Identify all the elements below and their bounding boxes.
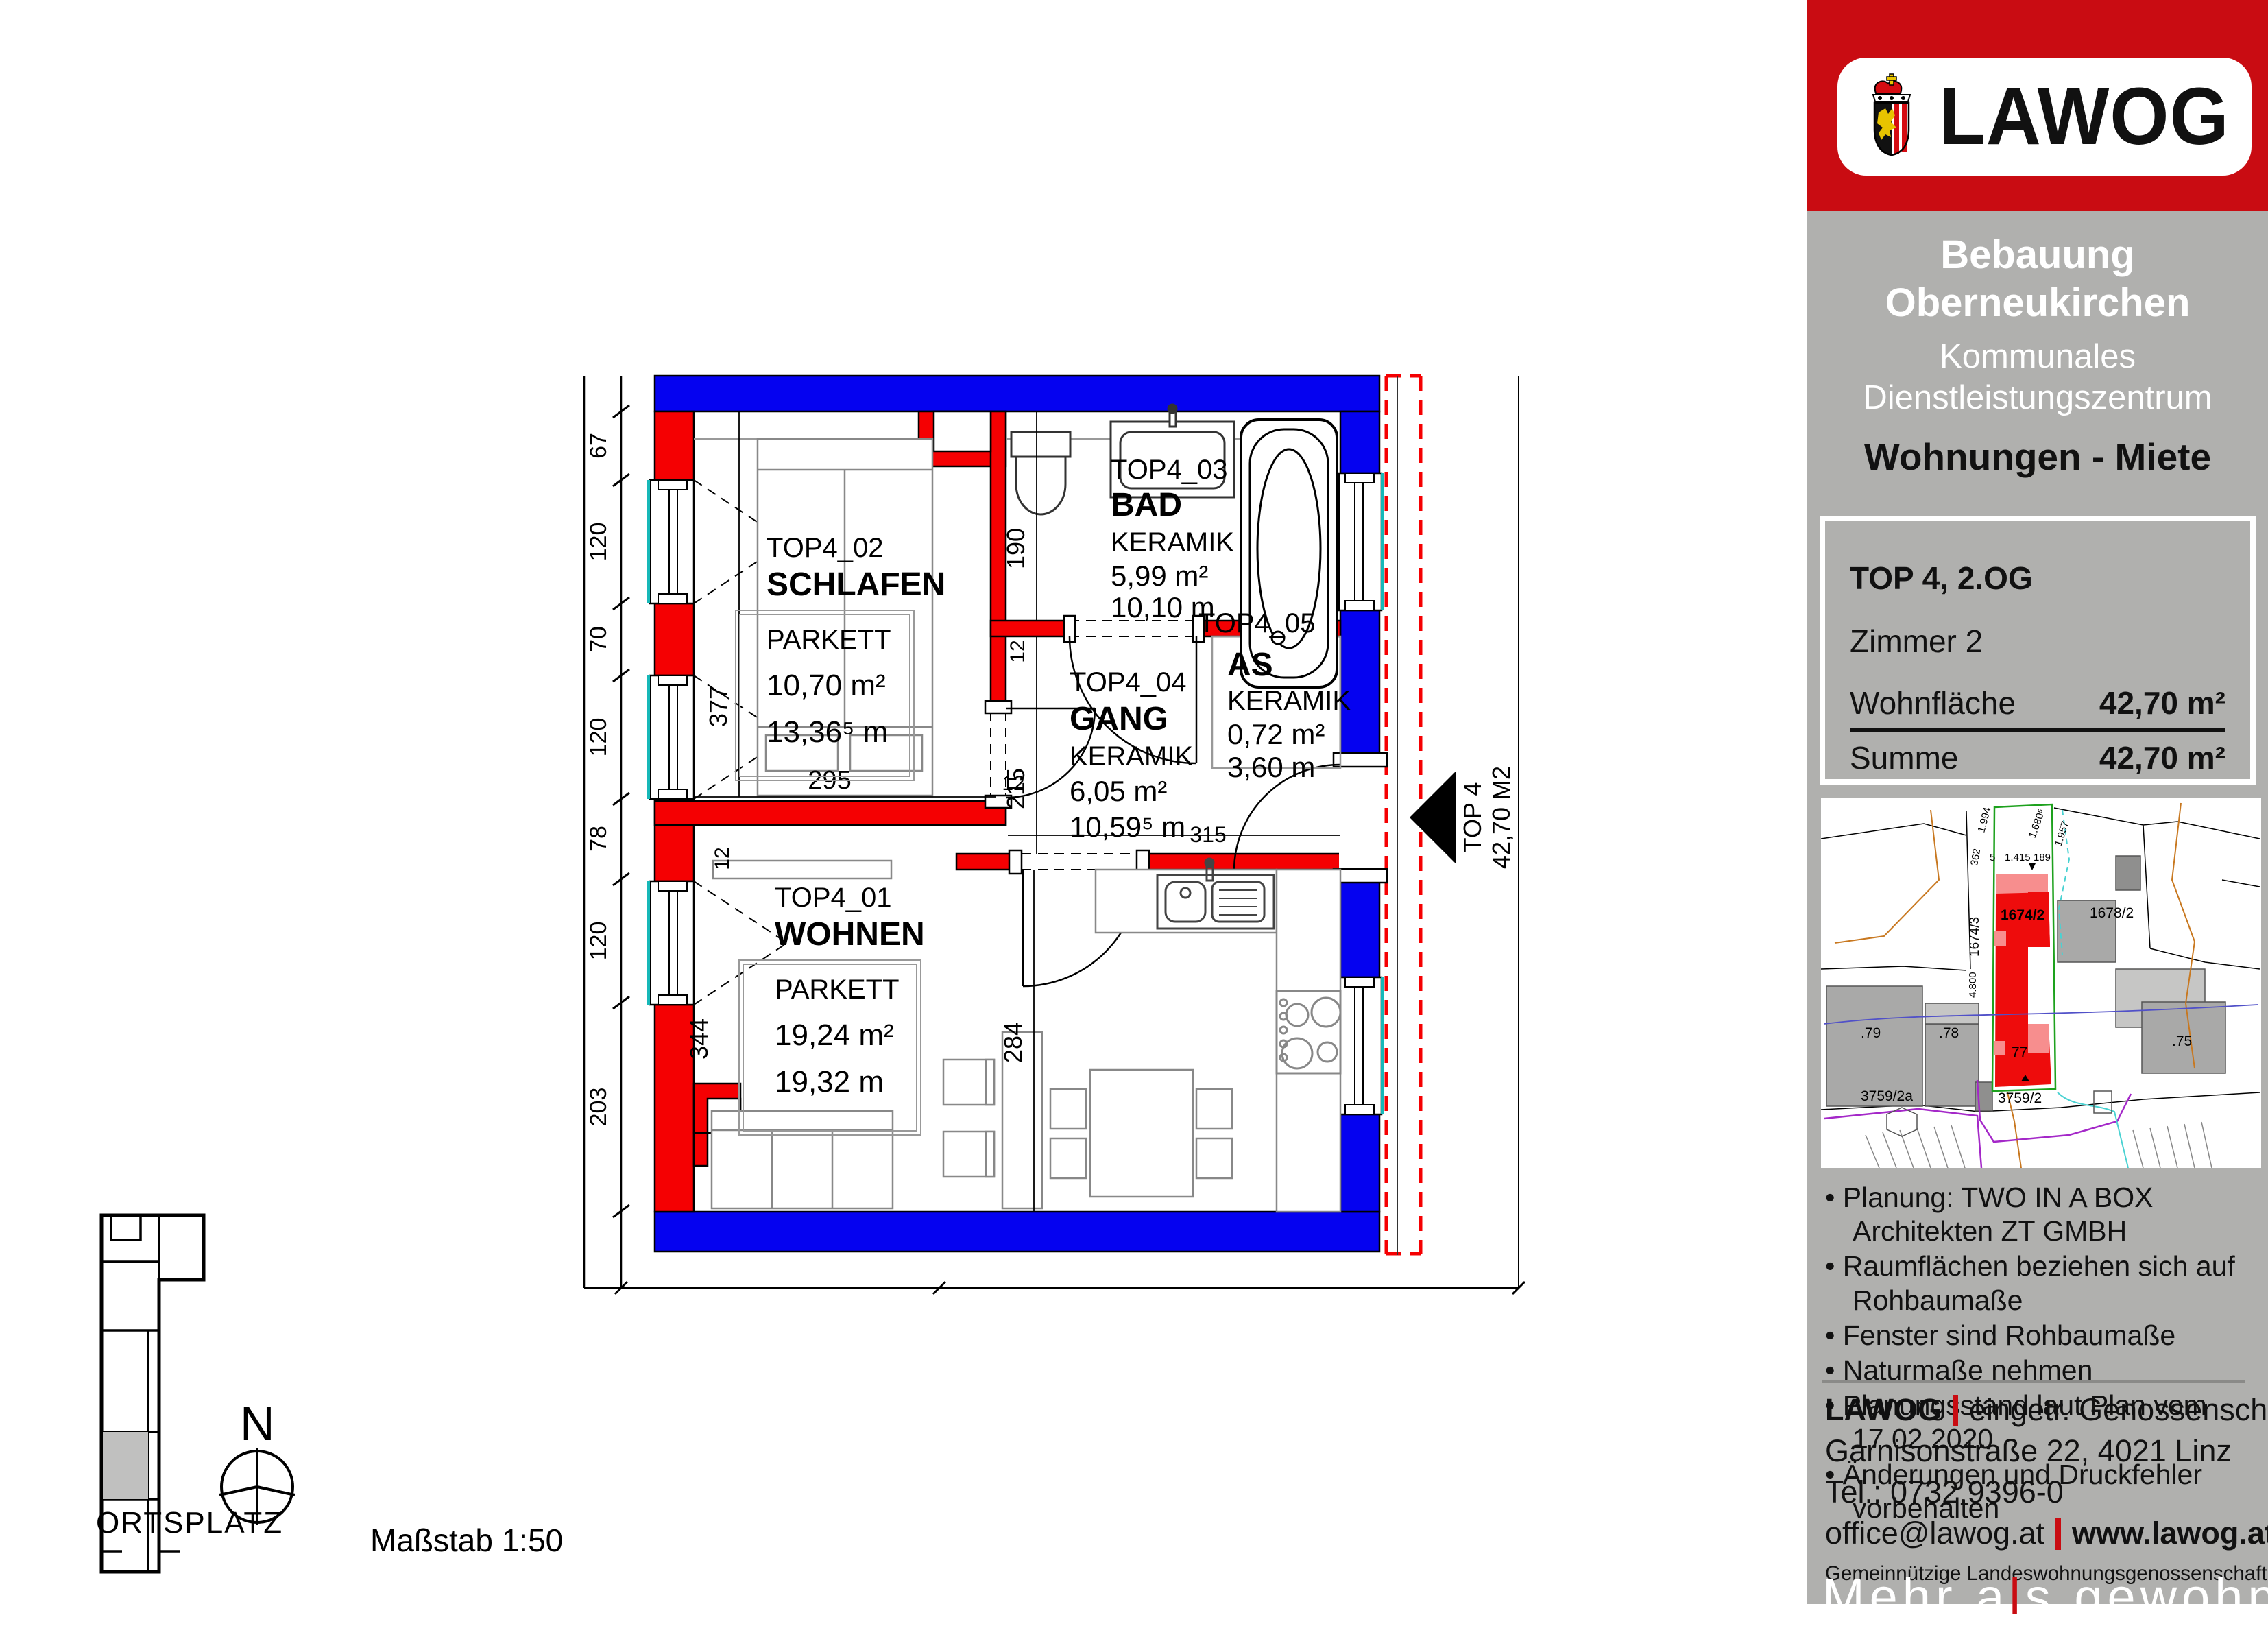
map-label-75: .75 xyxy=(2172,1033,2192,1049)
sum-value: 42,70 m² xyxy=(2099,739,2225,776)
map-label-1678-2: 1678/2 xyxy=(2090,905,2134,921)
map-label-77: 77 xyxy=(2012,1044,2027,1060)
dim-left-4: 78 xyxy=(586,826,612,852)
slogan-part2: s gewohnt xyxy=(2025,1568,2268,1625)
room-bad-labels: TOP4_03 BAD KERAMIK 5,99 m² 10,10 m xyxy=(1111,455,1234,623)
room-gang-area: 6,05 m² xyxy=(1070,775,1167,807)
room-bad-id: TOP4_03 xyxy=(1111,455,1228,485)
room-gang-perimeter: 10,59⁵ m xyxy=(1070,811,1185,843)
contact-name: LAWOG xyxy=(1825,1392,1942,1427)
map-label-79: .79 xyxy=(1861,1025,1881,1041)
dim-344: 344 xyxy=(685,1018,713,1060)
room-schlafen-perimeter: 13,36⁵ m xyxy=(767,715,888,749)
toilet xyxy=(1011,432,1070,514)
dim-12c: 12 xyxy=(1002,772,1024,795)
map-hexagon xyxy=(1887,1108,1917,1136)
room-schlafen-name: SCHLAFEN xyxy=(767,566,945,603)
divider xyxy=(1822,1380,2245,1383)
contact-address: Garnisonstraße 22, 4021 Linz xyxy=(1825,1433,2257,1469)
dim-12b: 12 xyxy=(1006,640,1029,662)
map-label-3759-2a: 3759/2a xyxy=(1861,1088,1913,1104)
red-bar-icon xyxy=(1953,1395,1958,1426)
window-left-3 xyxy=(649,881,787,1005)
unit-info-box: TOP 4, 2.OG Zimmer 2 Wohnfläche 42,70 m²… xyxy=(1820,516,2256,785)
armchairs xyxy=(943,1060,994,1177)
living-area-label: Wohnfläche xyxy=(1850,684,2016,721)
sum-label: Summe xyxy=(1850,739,1958,776)
dim-left-1: 120 xyxy=(586,523,612,562)
stove xyxy=(1277,991,1340,1073)
room-schlafen-id: TOP4_02 xyxy=(767,533,884,563)
map-label-78: .78 xyxy=(1939,1025,1959,1041)
room-as-floor: KERAMIK xyxy=(1227,686,1351,716)
dim-left-5: 120 xyxy=(586,922,612,961)
slogan-part1: Mehr a xyxy=(1822,1568,2009,1625)
map-dim-1680: 1.680⁵ xyxy=(2027,807,2048,839)
dim-left-6: 203 xyxy=(586,1088,612,1127)
room-as-perimeter: 3,60 m xyxy=(1227,751,1315,783)
contact-name-rest: eingetr. Genossenschaft m.b.H. xyxy=(1969,1392,2268,1427)
map-dim-1957: 1.957 xyxy=(2053,820,2072,848)
note-item: Planung: TWO IN A BOX Architekten ZT GMB… xyxy=(1825,1181,2254,1248)
header-banner: LAWOG xyxy=(1807,0,2268,211)
red-bar-icon xyxy=(2055,1518,2061,1550)
lawog-logo: LAWOG xyxy=(1837,58,2252,176)
room-gang-floor: KERAMIK xyxy=(1070,741,1193,772)
project-title-line1: Bebauung xyxy=(1807,232,2268,278)
dimension-labels-left: 67 120 70 120 78 120 203 xyxy=(586,433,612,1126)
offer-type-label: Wohnungen - Miete xyxy=(1807,435,2268,479)
map-dim-362: 362 xyxy=(1968,848,1983,867)
dim-12a: 12 xyxy=(711,847,734,870)
room-wohnen-floor: PARKETT xyxy=(775,975,900,1005)
unit-rooms: Zimmer 2 xyxy=(1850,623,1983,660)
project-title-line2: Oberneukirchen xyxy=(1807,280,2268,326)
dim-left-0: 67 xyxy=(586,433,612,459)
marker-triangle-icon xyxy=(1410,771,1456,864)
dim-left-3: 120 xyxy=(586,718,612,757)
contact-email[interactable]: office@lawog.at xyxy=(1825,1516,2044,1551)
room-wohnen-id: TOP4_01 xyxy=(775,883,892,913)
north-label: N xyxy=(240,1397,275,1450)
note-item: Fenster sind Rohbaumaße xyxy=(1825,1319,2254,1352)
room-bad-floor: KERAMIK xyxy=(1111,527,1234,558)
map-dim-189: 189 xyxy=(2034,852,2051,863)
room-gang-name: GANG xyxy=(1070,701,1168,737)
note-item: Raumflächen beziehen sich auf Rohbaumaße xyxy=(1825,1250,2254,1317)
map-dim-5: 5 xyxy=(1990,852,1995,863)
logo-wordmark: LAWOG xyxy=(1939,70,2230,163)
unit-id: TOP 4, 2.OG xyxy=(1850,560,2033,597)
dim-284: 284 xyxy=(999,1022,1027,1063)
sidebar: LAWOG Bebauung Oberneukirchen Kommunales… xyxy=(1807,0,2268,1604)
contact-web[interactable]: www.lawog.at xyxy=(2072,1516,2268,1551)
living-area-value: 42,70 m² xyxy=(2099,684,2225,721)
room-wohnen-perimeter: 19,32 m xyxy=(775,1065,884,1099)
map-label-1674-2: 1674/2 xyxy=(2001,907,2044,923)
coat-of-arms-icon xyxy=(1861,73,1924,160)
room-wohnen-name: WOHNEN xyxy=(775,916,925,953)
scale-label: Maßstab 1:50 xyxy=(370,1522,563,1558)
map-label-3759-2: 3759/2 xyxy=(1998,1090,2042,1106)
window-right-kitchen xyxy=(1339,977,1382,1114)
dim-315: 315 xyxy=(1190,822,1226,847)
wardrobe xyxy=(713,861,891,878)
dim-left-2: 70 xyxy=(586,626,612,652)
room-wohnen-labels: TOP4_01 WOHNEN PARKETT 19,24 m² 19,32 m xyxy=(739,883,925,1135)
room-as-area: 0,72 m² xyxy=(1227,718,1325,750)
room-wohnen-area: 19,24 m² xyxy=(775,1018,894,1052)
room-schlafen-floor: PARKETT xyxy=(767,625,891,655)
room-as-id: TOP4_05 xyxy=(1198,608,1316,638)
project-subtitle-line1: Kommunales xyxy=(1807,337,2268,376)
marker-line1: TOP 4 xyxy=(1458,782,1486,853)
dim-190: 190 xyxy=(1002,528,1030,569)
slogan-accent: l xyxy=(2009,1568,2025,1625)
map-label-1674-3: 1674/3 xyxy=(1968,917,1982,957)
dining-set xyxy=(1050,1070,1232,1197)
site-plan-map: 1674/2 1674/3 1678/2 .79 .78 77 .75 3759… xyxy=(1821,798,2261,1168)
room-schlafen-area: 10,70 m² xyxy=(767,669,886,702)
room-gang-id: TOP4_04 xyxy=(1070,667,1187,697)
shaft-niche xyxy=(934,411,991,451)
map-dim-1994: 1.994 xyxy=(1975,806,1993,834)
contact-phone: Tel.: 0732.9396-0 xyxy=(1825,1474,2257,1510)
project-subtitle-line2: Dienstleistungszentrum xyxy=(1807,379,2268,417)
dim-377: 377 xyxy=(704,686,732,727)
apartment-marker: TOP 4 42,70 M2 xyxy=(1410,766,1515,869)
map-dim-1415: 1.415 xyxy=(2005,852,2031,863)
window-right-bath xyxy=(1339,473,1382,610)
map-dim-4800: 4.800 xyxy=(1967,972,1979,998)
room-as-name: AS xyxy=(1227,647,1273,683)
marker-line2: 42,70 M2 xyxy=(1487,766,1515,869)
room-bad-name: BAD xyxy=(1111,487,1182,523)
room-bad-area: 5,99 m² xyxy=(1111,560,1208,592)
room-gang-labels: TOP4_04 GANG KERAMIK 6,05 m² 10,59⁵ m xyxy=(1070,667,1193,843)
slogan: Mehr als gewohnt xyxy=(1822,1568,2261,1626)
